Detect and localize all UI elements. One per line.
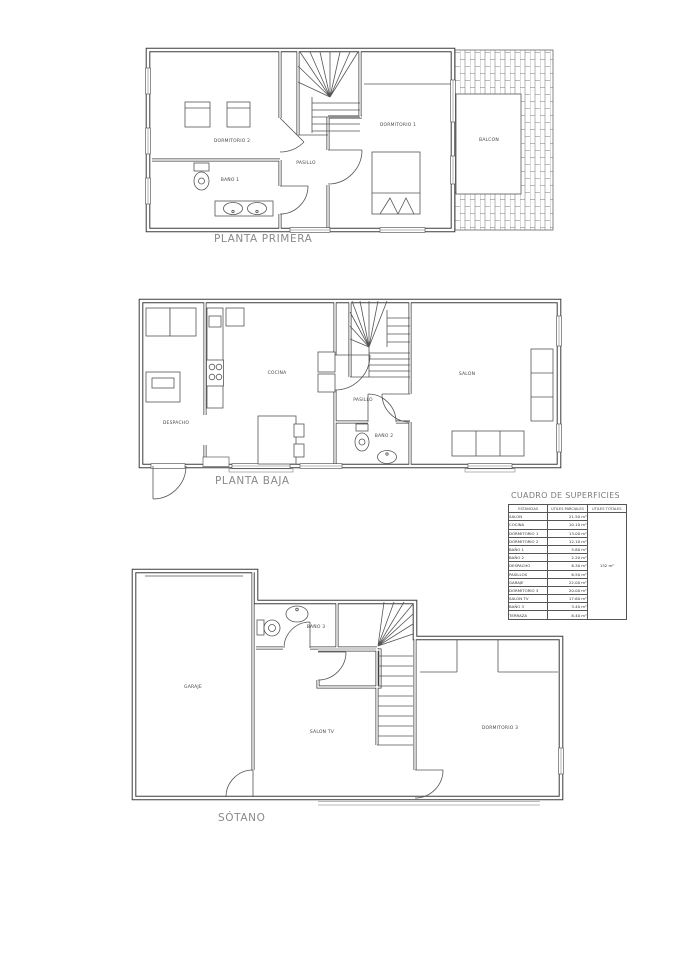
room-label-dormitorio-1: DORMITORIO 1 xyxy=(380,122,416,128)
room-area-cell: 17.60 m² xyxy=(548,595,587,603)
room-label-pasillo-p1: PASILLO xyxy=(296,160,316,166)
surface-table: ESTANCIAS UTILES PARCIALES UTILES TOTALE… xyxy=(508,504,627,620)
room-label-bano-2: BAÑO 2 xyxy=(375,432,394,439)
desk xyxy=(146,308,196,402)
stairs-ground xyxy=(350,301,410,377)
room-name-cell: DORMITORIO 1 xyxy=(509,529,548,537)
room-area-cell: 12.10 m² xyxy=(548,537,587,545)
room-label-pasillo-pb: PASILLO xyxy=(353,397,373,403)
toilet-icon xyxy=(355,424,397,464)
room-name-cell: DESPACHO xyxy=(509,562,548,570)
room-name-cell: BAÑO 2 xyxy=(509,554,548,562)
room-label-dormitorio-3: DORMITORIO 3 xyxy=(482,725,518,731)
room-area-cell: 13.00 m² xyxy=(548,529,587,537)
title-planta-primera: PLANTA PRIMERA xyxy=(214,233,312,245)
toilet-icon xyxy=(257,620,280,636)
doors xyxy=(280,118,362,214)
sink-icon xyxy=(286,606,308,622)
table-header-row: ESTANCIAS UTILES PARCIALES UTILES TOTALE… xyxy=(509,505,627,513)
room-label-balcon: BALCON xyxy=(479,137,499,143)
toilet-icon xyxy=(194,163,209,190)
col-header-utiles-parciales: UTILES PARCIALES xyxy=(548,505,587,513)
room-area-cell: 6.30 m² xyxy=(548,562,587,570)
room-label-bano-1: BAÑO 1 xyxy=(221,176,240,183)
table-row: SALON 21.50 m² 132 m² xyxy=(509,513,627,521)
room-label-despacho: DESPACHO xyxy=(163,420,190,426)
room-name-cell: TERRAZA xyxy=(509,611,548,619)
room-area-cell: 10.10 m² xyxy=(548,521,587,529)
closets xyxy=(420,640,558,672)
bedroom2-furniture xyxy=(185,102,250,127)
stairs-basement xyxy=(377,602,413,745)
bed-icon xyxy=(372,152,420,214)
vanity-sinks xyxy=(215,201,273,216)
room-label-salon: SALON xyxy=(459,371,475,377)
room-name-cell: GARAJE xyxy=(509,578,548,586)
room-label-salon-tv: SALON TV xyxy=(310,729,335,735)
room-name-cell: COCINA xyxy=(509,521,548,529)
floor-plan-planta-baja: COCINA DESPACHO PASILLO BAÑO 2 SALON xyxy=(135,295,565,505)
room-area-cell: 22.00 m² xyxy=(548,578,587,586)
room-area-cell: 20.00 m² xyxy=(548,586,587,594)
title-planta-baja: PLANTA BAJA xyxy=(215,475,290,487)
room-name-cell: BAÑO 1 xyxy=(509,545,548,553)
room-name-cell: DORMITORIO 3 xyxy=(509,586,548,594)
total-area-cell: 132 m² xyxy=(587,513,626,619)
terrace-hatch xyxy=(455,50,553,230)
surface-table-title: CUADRO DE SUPERFICIES xyxy=(511,491,620,500)
room-label-bano-3: BAÑO 3 xyxy=(307,623,326,630)
room-area-cell: 6.50 m² xyxy=(548,570,587,578)
room-area-cell: 8.40 m² xyxy=(548,611,587,619)
room-area-cell: 2.20 m² xyxy=(548,554,587,562)
kitchen-counter xyxy=(207,308,336,408)
kitchen-table xyxy=(258,416,304,464)
room-area-cell: 5.80 m² xyxy=(548,545,587,553)
room-area-cell: 21.50 m² xyxy=(548,513,587,521)
room-name-cell: SALON TV xyxy=(509,595,548,603)
floor-plan-sotano: GARAJE BAÑO 3 SALON TV DORMITORIO 3 xyxy=(130,560,570,830)
room-name-cell: BAÑO 3 xyxy=(509,603,548,611)
entrance-door xyxy=(153,466,186,499)
col-header-utiles-totales: UTILES TOTALES xyxy=(587,505,626,513)
floor-plan-planta-primera: DORMITORIO 2 BAÑO 1 PASILLO DORMITORIO 1… xyxy=(140,40,560,250)
room-name-cell: DORMITORIO 2 xyxy=(509,537,548,545)
title-sotano: SÓTANO xyxy=(218,812,265,824)
architectural-drawing-sheet: DORMITORIO 2 BAÑO 1 PASILLO DORMITORIO 1… xyxy=(0,0,689,975)
room-name-cell: SALON xyxy=(509,513,548,521)
col-header-estancias: ESTANCIAS xyxy=(509,505,548,513)
room-name-cell: PASILLOS xyxy=(509,570,548,578)
room-label-garaje: GARAJE xyxy=(184,684,202,690)
room-label-cocina: COCINA xyxy=(268,370,288,376)
room-area-cell: 3.40 m² xyxy=(548,603,587,611)
windows xyxy=(145,576,563,805)
sofa xyxy=(452,349,553,456)
room-label-dormitorio-2: DORMITORIO 2 xyxy=(214,138,250,144)
